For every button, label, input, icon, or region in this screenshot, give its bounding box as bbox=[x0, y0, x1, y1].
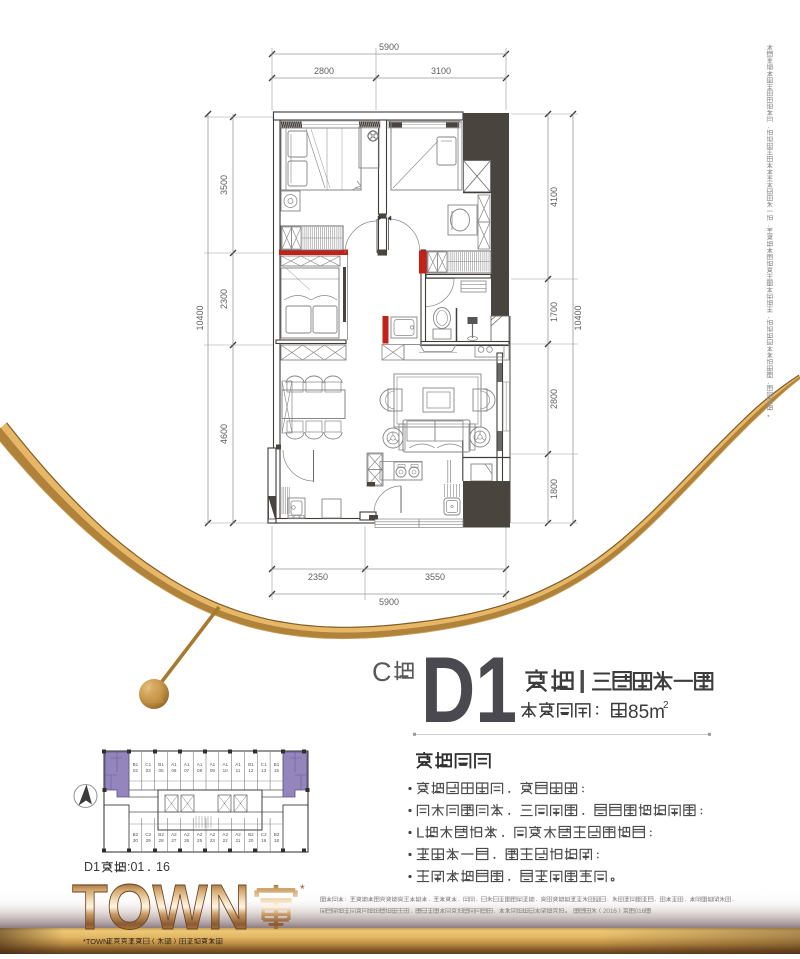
svg-text:1800: 1800 bbox=[549, 479, 559, 499]
svg-text:26: 26 bbox=[184, 838, 190, 843]
svg-text:05: 05 bbox=[159, 768, 165, 773]
svg-text:C2: C2 bbox=[261, 832, 267, 837]
svg-text:B1: B1 bbox=[133, 762, 139, 767]
svg-text:2: 2 bbox=[663, 700, 669, 711]
svg-text:03: 03 bbox=[146, 768, 152, 773]
svg-text:6: 6 bbox=[613, 908, 617, 915]
svg-text:D1: D1 bbox=[421, 638, 517, 743]
svg-text:06: 06 bbox=[171, 768, 177, 773]
svg-text:B2: B2 bbox=[158, 832, 164, 837]
svg-text:28: 28 bbox=[159, 838, 165, 843]
svg-text:22: 22 bbox=[223, 838, 229, 843]
svg-text:19: 19 bbox=[261, 838, 267, 843]
svg-text:08: 08 bbox=[197, 768, 203, 773]
svg-text:C1: C1 bbox=[261, 762, 267, 767]
svg-text:*: * bbox=[300, 882, 305, 896]
svg-text:15: 15 bbox=[274, 768, 280, 773]
svg-text:A1: A1 bbox=[210, 762, 216, 767]
svg-text:18: 18 bbox=[274, 838, 280, 843]
svg-text:12: 12 bbox=[248, 768, 254, 773]
svg-text:B2: B2 bbox=[274, 832, 280, 837]
svg-text:4100: 4100 bbox=[549, 187, 559, 207]
svg-text:3550: 3550 bbox=[425, 572, 445, 582]
svg-text:11: 11 bbox=[236, 768, 241, 773]
svg-text:3100: 3100 bbox=[431, 66, 451, 76]
svg-text:A2: A2 bbox=[171, 832, 177, 837]
svg-text:21: 21 bbox=[235, 838, 241, 843]
svg-text:10: 10 bbox=[223, 768, 229, 773]
svg-text:A1: A1 bbox=[184, 762, 190, 767]
svg-text:B2: B2 bbox=[248, 832, 254, 837]
svg-text:B2: B2 bbox=[133, 832, 139, 837]
svg-text:2350: 2350 bbox=[308, 572, 328, 582]
svg-text:L: L bbox=[416, 824, 424, 841]
svg-text:A1: A1 bbox=[235, 762, 241, 767]
svg-text:C2: C2 bbox=[145, 832, 151, 837]
svg-text:13: 13 bbox=[261, 768, 267, 773]
svg-text:C1: C1 bbox=[145, 762, 151, 767]
svg-text:10400: 10400 bbox=[573, 305, 583, 330]
svg-text:3500: 3500 bbox=[219, 175, 229, 195]
svg-text:2800: 2800 bbox=[314, 66, 334, 76]
svg-text:A1: A1 bbox=[222, 762, 228, 767]
svg-text:A2: A2 bbox=[222, 832, 228, 837]
svg-text:02: 02 bbox=[133, 768, 139, 773]
svg-text:10400: 10400 bbox=[195, 305, 205, 330]
svg-text:A2: A2 bbox=[210, 832, 216, 837]
svg-text:TOWN: TOWN bbox=[72, 871, 250, 943]
svg-text:29: 29 bbox=[146, 838, 152, 843]
svg-text:B1: B1 bbox=[158, 762, 164, 767]
svg-text:B1: B1 bbox=[274, 762, 280, 767]
svg-text:07: 07 bbox=[184, 768, 190, 773]
svg-text:*TOWN: *TOWN bbox=[83, 937, 108, 946]
svg-text:C: C bbox=[372, 657, 392, 687]
svg-text:5900: 5900 bbox=[379, 597, 399, 607]
svg-text:30: 30 bbox=[133, 838, 139, 843]
svg-text:6: 6 bbox=[642, 908, 646, 915]
svg-text:B1: B1 bbox=[248, 762, 254, 767]
svg-text:1700: 1700 bbox=[549, 302, 559, 322]
svg-text:23: 23 bbox=[210, 838, 216, 843]
svg-text:09: 09 bbox=[210, 768, 216, 773]
svg-text:A1: A1 bbox=[171, 762, 177, 767]
svg-text:A1: A1 bbox=[197, 762, 203, 767]
svg-text:2300: 2300 bbox=[219, 289, 229, 309]
svg-text:4600: 4600 bbox=[219, 424, 229, 444]
svg-text:A2: A2 bbox=[184, 832, 190, 837]
svg-text:85m: 85m bbox=[628, 702, 665, 723]
svg-text:20: 20 bbox=[248, 838, 254, 843]
svg-text:25: 25 bbox=[197, 838, 203, 843]
svg-text:A2: A2 bbox=[197, 832, 203, 837]
svg-text:2800: 2800 bbox=[549, 389, 559, 409]
svg-text:27: 27 bbox=[171, 838, 177, 843]
svg-text:A2: A2 bbox=[235, 832, 241, 837]
svg-text:5900: 5900 bbox=[379, 42, 399, 52]
